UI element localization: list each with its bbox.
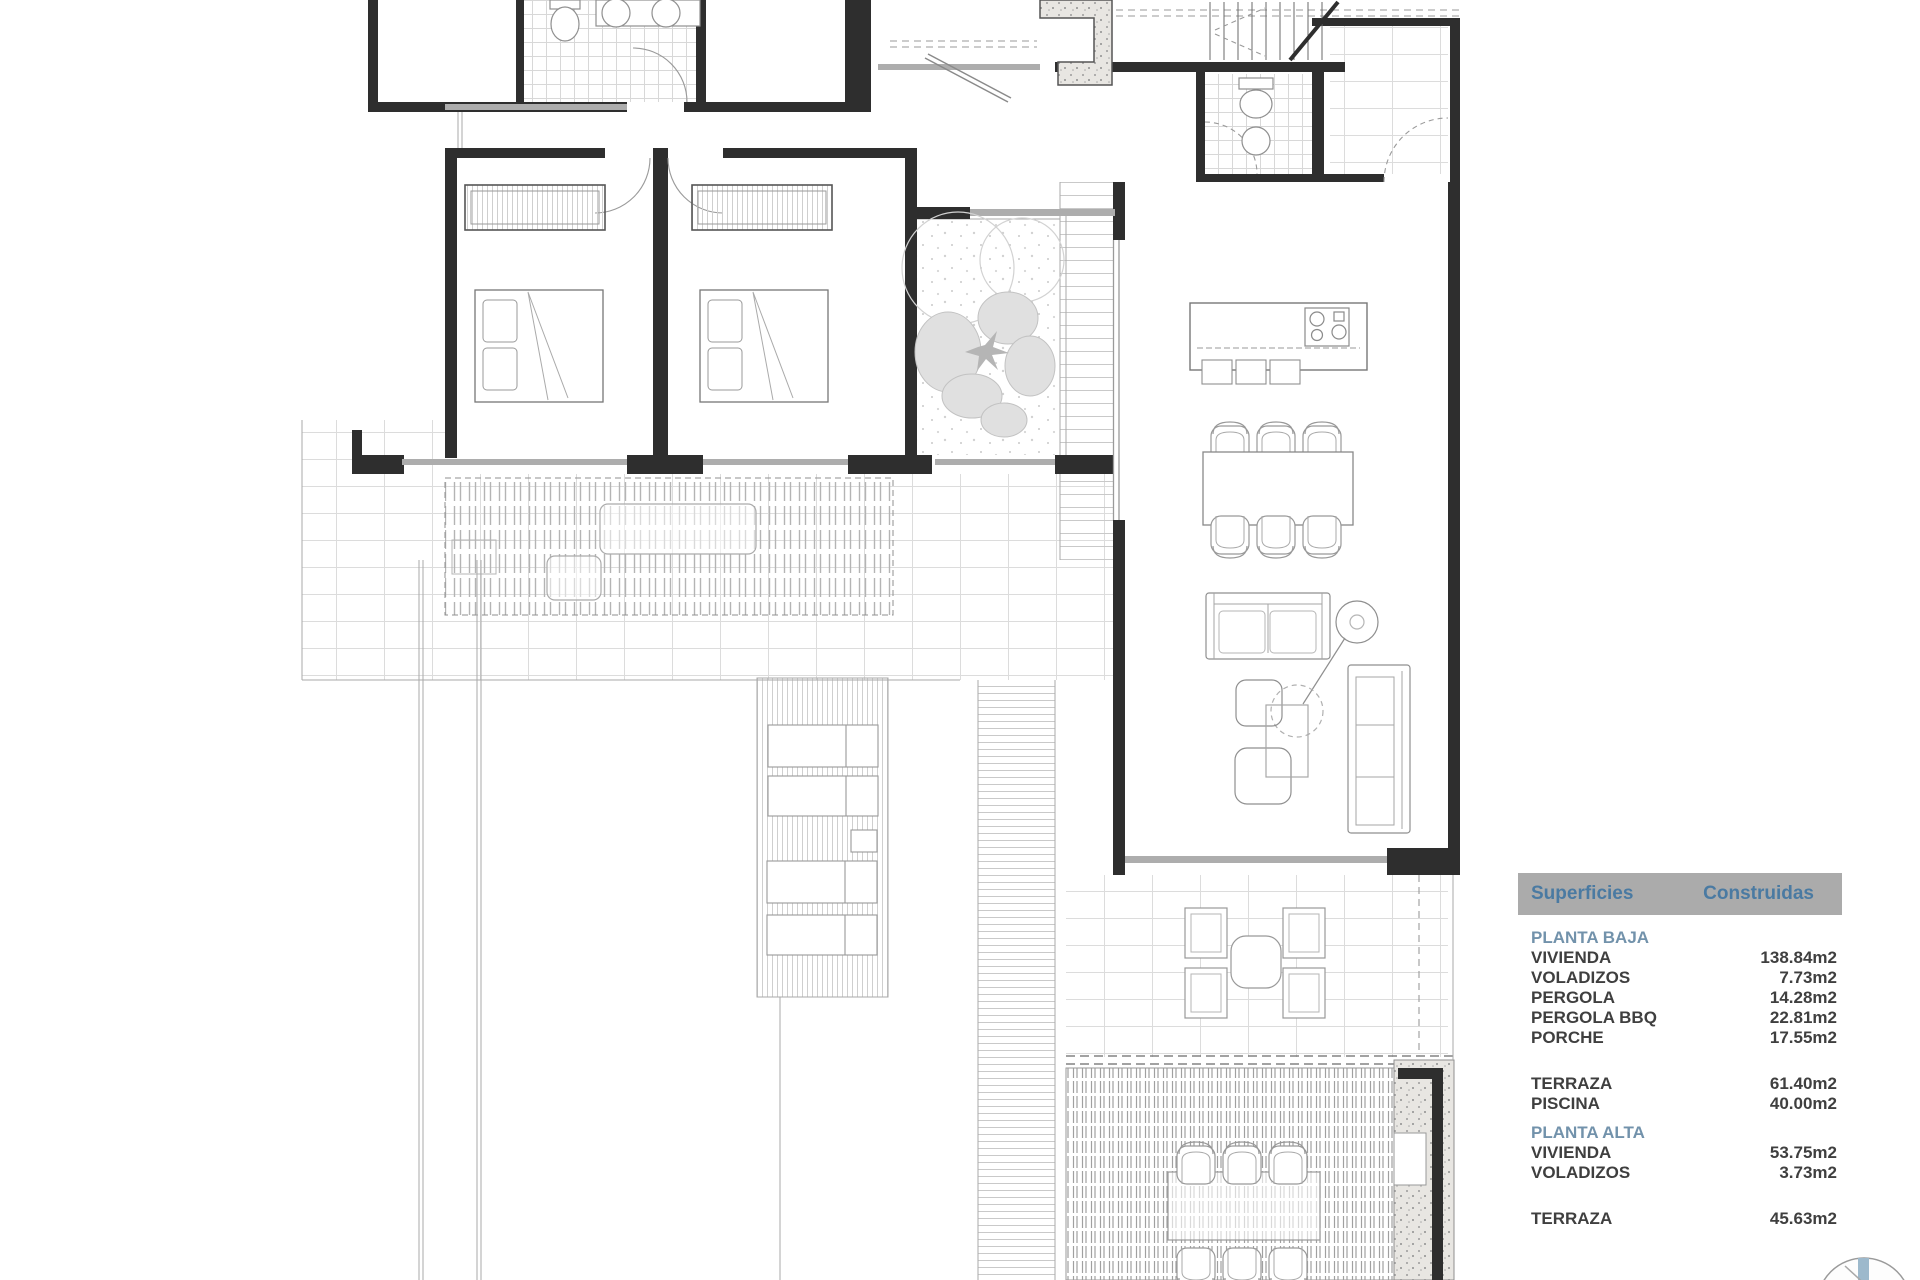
area-label: PERGOLA BBQ (1531, 1008, 1657, 1028)
areas-table-body: PLANTA BAJAVIVIENDA138.84m2VOLADIZOS7.73… (1518, 915, 1842, 1229)
area-row: VIVIENDA53.75m2 (1518, 1143, 1842, 1163)
entry-planter (1040, 0, 1112, 85)
deck-chair (1269, 1248, 1307, 1280)
staircase (1210, 2, 1338, 60)
bedroom-2 (692, 185, 832, 402)
glass-wall (1114, 240, 1120, 520)
area-value: 61.40m2 (1770, 1074, 1837, 1094)
area-label: PERGOLA (1531, 988, 1615, 1008)
outdoor-chair (1185, 908, 1227, 958)
deck-chair (1223, 1248, 1261, 1280)
wardrobe (465, 185, 605, 230)
section-gap (1518, 1183, 1842, 1209)
bbq-counter (768, 725, 878, 767)
area-label: VOLADIZOS (1531, 968, 1630, 988)
deck-chair (1177, 1248, 1215, 1280)
areas-header-col2: Construidas (1703, 883, 1814, 905)
window (970, 209, 1115, 216)
bar-stool (1236, 360, 1266, 384)
bbq-counter (768, 776, 878, 816)
walkway-lower (978, 680, 1055, 1280)
toilet-bowl (551, 7, 579, 41)
stair-treads (1210, 2, 1322, 60)
area-value: 22.81m2 (1770, 1008, 1837, 1028)
area-value: 3.73m2 (1779, 1163, 1837, 1183)
area-row: PISCINA40.00m2 (1518, 1094, 1842, 1114)
bbq-sink (851, 830, 877, 852)
section-title: PLANTA ALTA (1518, 1123, 1842, 1143)
sliding-glass-door (703, 459, 848, 465)
area-row: VIVIENDA138.84m2 (1518, 948, 1842, 968)
sliding-glass-door (1125, 856, 1387, 863)
architect-compass-logo-icon (1817, 1258, 1911, 1280)
bar-stool (1270, 360, 1300, 384)
bbq-pergola-zone (757, 678, 888, 997)
bed (475, 290, 603, 402)
deck-chair (1223, 1142, 1261, 1184)
area-row: PORCHE17.55m2 (1518, 1028, 1842, 1048)
coffee-table (1266, 705, 1308, 777)
pergola-zone (445, 478, 893, 615)
area-row: TERRAZA61.40m2 (1518, 1074, 1842, 1094)
sliding-glass-door (935, 459, 1055, 465)
area-label: PISCINA (1531, 1094, 1600, 1114)
bbq-counter (767, 915, 877, 955)
toilet-tank (1239, 78, 1273, 89)
area-label: TERRAZA (1531, 1209, 1612, 1229)
dining-chair (1303, 516, 1341, 558)
living-room (1206, 593, 1410, 833)
sink-basin (1242, 127, 1270, 155)
bedroom-1 (465, 185, 605, 402)
pergola-chair (547, 556, 601, 600)
pouf (1235, 748, 1291, 804)
areas-table: Superficies Construidas PLANTA BAJAVIVIE… (1518, 873, 1842, 1229)
sink-basin (652, 0, 680, 27)
wall-niche (1394, 1133, 1426, 1185)
sofa-two-seat (1206, 593, 1330, 659)
dining-area (1203, 422, 1353, 558)
sliding-glass-door (402, 459, 627, 465)
deck-chair (1269, 1142, 1307, 1184)
section-gap (1518, 1048, 1842, 1074)
area-row: TERRAZA45.63m2 (1518, 1209, 1842, 1229)
area-row: VOLADIZOS7.73m2 (1518, 968, 1842, 988)
dining-table (1203, 452, 1353, 525)
kitchen (1190, 303, 1367, 384)
outdoor-chair (1283, 908, 1325, 958)
outdoor-table (1231, 936, 1281, 988)
area-row: PERGOLA BBQ22.81m2 (1518, 1008, 1842, 1028)
area-value: 17.55m2 (1770, 1028, 1837, 1048)
area-value: 138.84m2 (1760, 948, 1837, 968)
deck-chair (1177, 1142, 1215, 1184)
area-label: VOLADIZOS (1531, 1163, 1630, 1183)
area-value: 53.75m2 (1770, 1143, 1837, 1163)
areas-table-header: Superficies Construidas (1518, 873, 1842, 915)
area-row: VOLADIZOS3.73m2 (1518, 1163, 1842, 1183)
entry-room-tiles (1330, 20, 1448, 174)
stair-direction (1215, 8, 1265, 56)
area-label: VIVIENDA (1531, 1143, 1611, 1163)
area-label: TERRAZA (1531, 1074, 1612, 1094)
section-title: PLANTA BAJA (1518, 928, 1842, 948)
area-value: 40.00m2 (1770, 1094, 1837, 1114)
area-row: PERGOLA14.28m2 (1518, 988, 1842, 1008)
bed (700, 290, 828, 402)
pouf (1236, 680, 1282, 726)
window (878, 64, 1040, 70)
area-value: 45.63m2 (1770, 1209, 1837, 1229)
outdoor-chair (1283, 968, 1325, 1018)
window (445, 104, 627, 110)
sofa-three-seat (1348, 665, 1410, 833)
bbq-counter (767, 861, 877, 903)
outdoor-chair (1185, 968, 1227, 1018)
area-value: 7.73m2 (1779, 968, 1837, 988)
dining-chair (1257, 516, 1295, 558)
toilet-bowl (1240, 90, 1272, 118)
sliding-door-leaf (925, 54, 1011, 102)
pergola-table (600, 504, 756, 554)
wall (1432, 1068, 1443, 1280)
dining-chair (1211, 516, 1249, 558)
pool-deck-zone (1066, 1056, 1454, 1280)
area-value: 14.28m2 (1770, 988, 1837, 1008)
area-label: PORCHE (1531, 1028, 1604, 1048)
wardrobe (692, 185, 832, 230)
bar-stool (1202, 360, 1232, 384)
areas-header-col1: Superficies (1531, 883, 1633, 905)
area-label: VIVIENDA (1531, 948, 1611, 968)
sink-basin (602, 0, 630, 27)
walkway-upper (1060, 182, 1113, 560)
floor-plan-page: Superficies Construidas PLANTA BAJAVIVIE… (0, 0, 1920, 1280)
